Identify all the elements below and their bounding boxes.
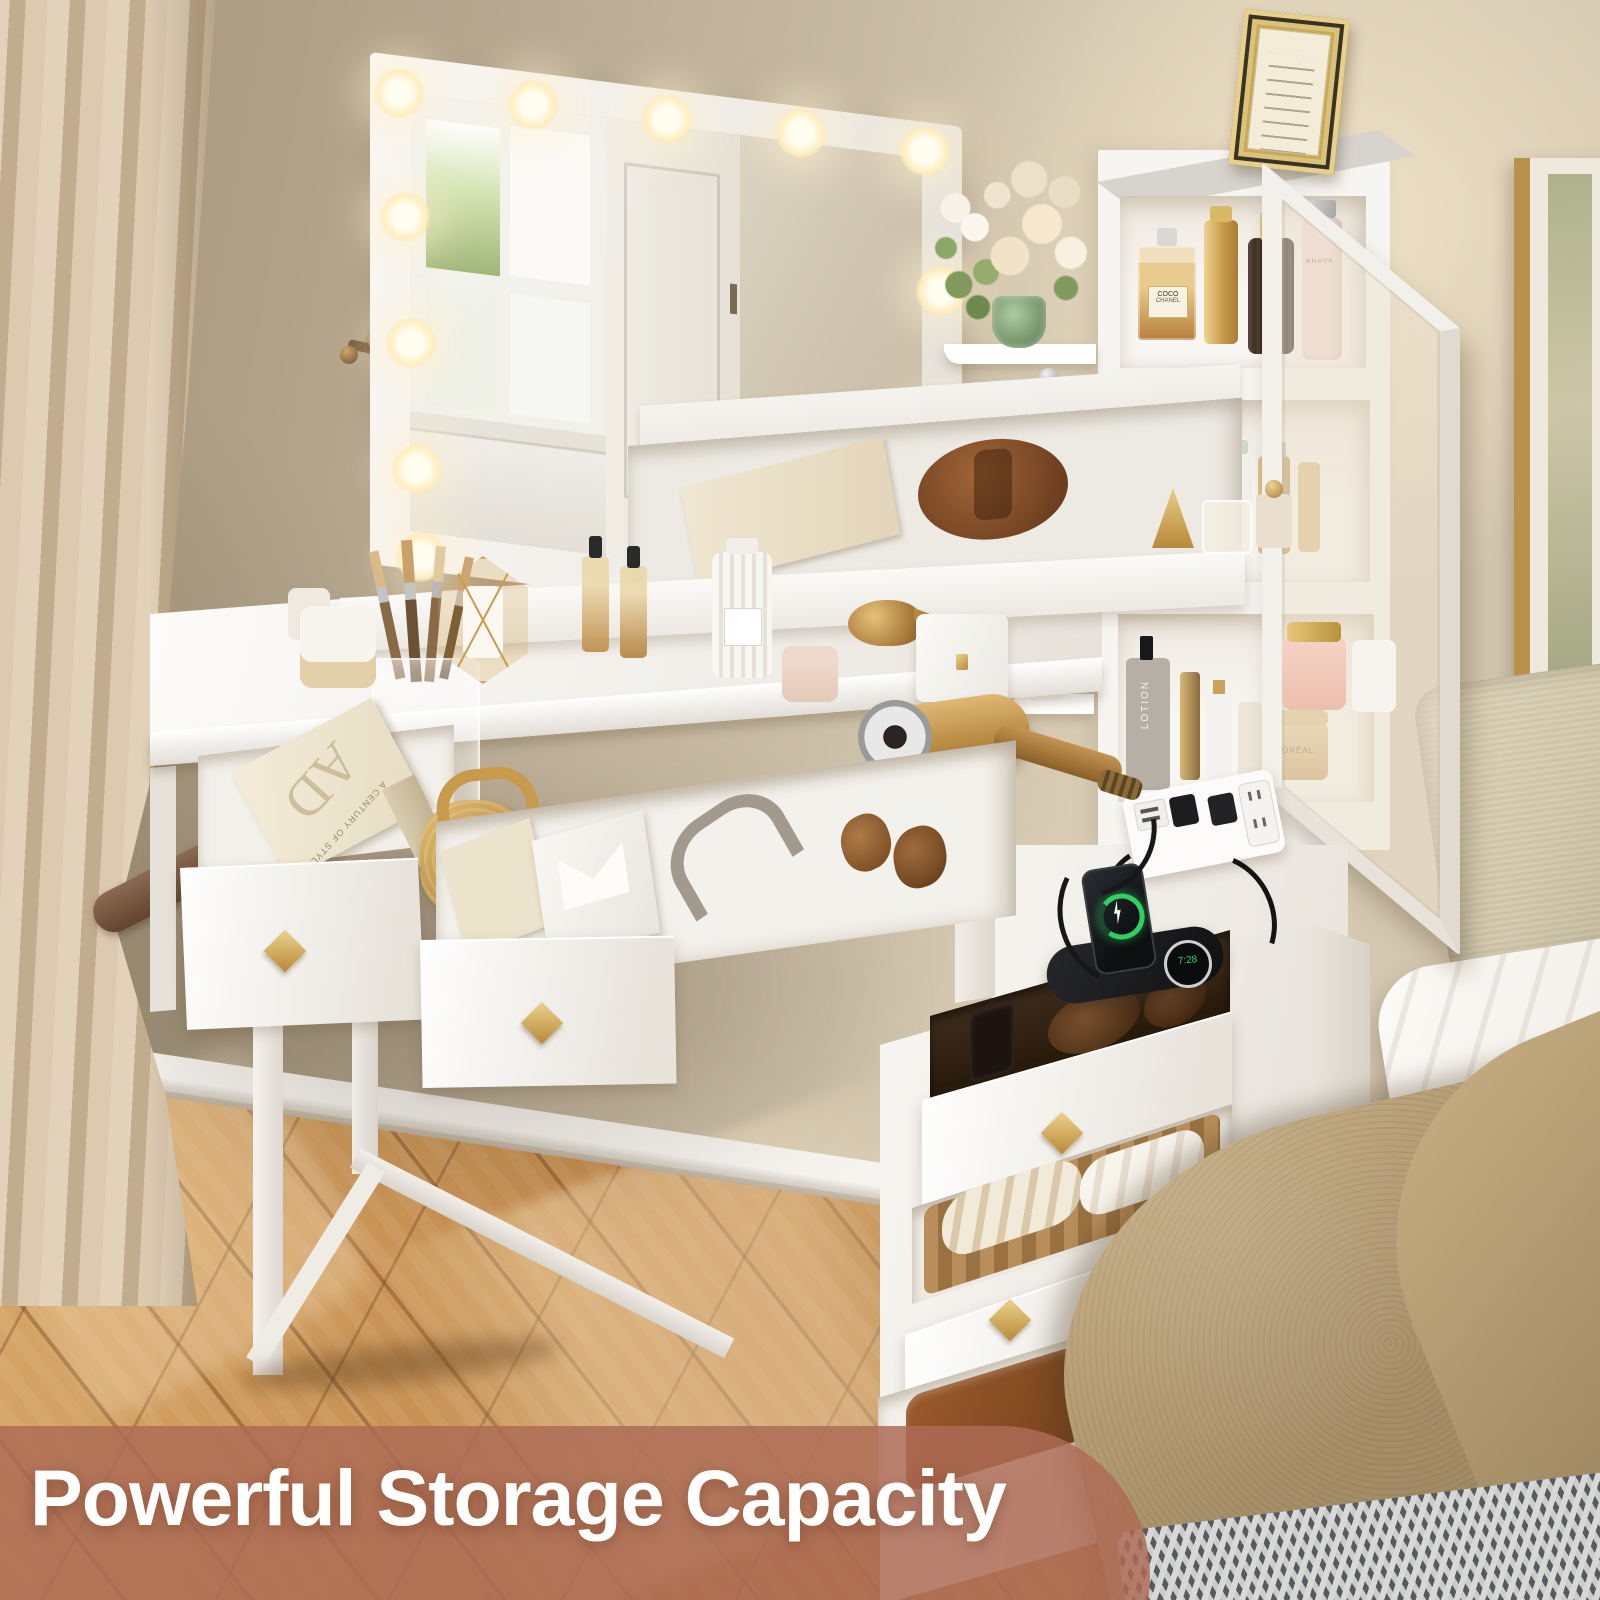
perfume-bottle-chanel: COCO CHANEL [1138,246,1196,340]
ribbed-bottle-label [724,608,762,646]
mirror-bulb [776,108,826,158]
ribbed-white-bottle [712,552,772,678]
gold-picture-frame-top [1228,9,1350,175]
jewelry-box-clasp [956,654,968,670]
mirror-bulb [508,80,558,130]
mirror-bulb [374,68,424,118]
mini-perfume-crystal-cube [1202,500,1252,554]
ribbed-bottle-cap [726,538,758,554]
lotion-pump [1140,636,1153,660]
chanel-label-chanel: CHANEL [1149,298,1187,304]
caption-title: Powerful Storage Capacity [30,1452,1006,1544]
scene-bedroom-vanity: COCO CHANEL AHAVA ESPA LOTION L'OREA [0,0,1600,1600]
white-cylinder-bottle [1352,640,1396,712]
serum-dropper-amber-2 [620,566,647,658]
black-dropper-cap-1 [589,536,602,558]
small-white-pump-bottle [1206,692,1232,780]
desk-left-side-panel [150,766,176,1012]
pink-jar-lid [1287,622,1341,642]
leather-jewelry-case-round [918,433,1068,545]
mirror-bulb [386,318,436,368]
mini-gold-sphere-cap [1265,480,1283,498]
white-jewelry-box [916,614,1008,702]
plug-black-1 [1168,793,1199,827]
pink-jar-gold-lid [1282,636,1346,710]
gold-bird-figurine [848,600,922,646]
blush-cream-jar [782,646,838,702]
envelope-on-box [557,842,630,911]
curtain-hook-rosette [340,346,358,364]
plug-black-2 [1207,792,1238,826]
black-dropper-cap-2 [627,546,640,568]
small-pump-top [1213,680,1225,694]
mini-perfume-ball-top [1256,494,1292,548]
cream-jar-gold-band [300,606,376,688]
chanel-label: COCO CHANEL [1148,286,1188,318]
case-strap [974,448,1012,521]
headphone-cup-2 [889,819,951,895]
chanel-label-coco: COCO [1149,291,1187,298]
desk-drawer-1-front [180,858,425,1030]
mirror-bulb [392,444,442,494]
mirror-bulb [380,192,430,242]
pump-bottle-lotion: LOTION [1126,658,1170,790]
glass-vase-green [992,296,1046,348]
perfume-bottle-gold-slim [1204,220,1238,344]
beige-bottle [1238,702,1262,780]
serum-dropper-amber-1 [582,556,609,652]
ac-outlet-duplex [1237,779,1281,848]
chanel-cap [1157,228,1177,246]
gold-slim-cap [1210,206,1232,222]
mirror-bulb [642,94,692,144]
lotion-label: LOTION [1140,680,1151,729]
dark-bottle-in-drawer [970,1002,1014,1083]
headphone-band [654,775,804,922]
frame-print-mat [1247,28,1331,157]
gold-tube-laura-mercier [1180,672,1200,780]
headphone-cup-1 [834,806,898,880]
